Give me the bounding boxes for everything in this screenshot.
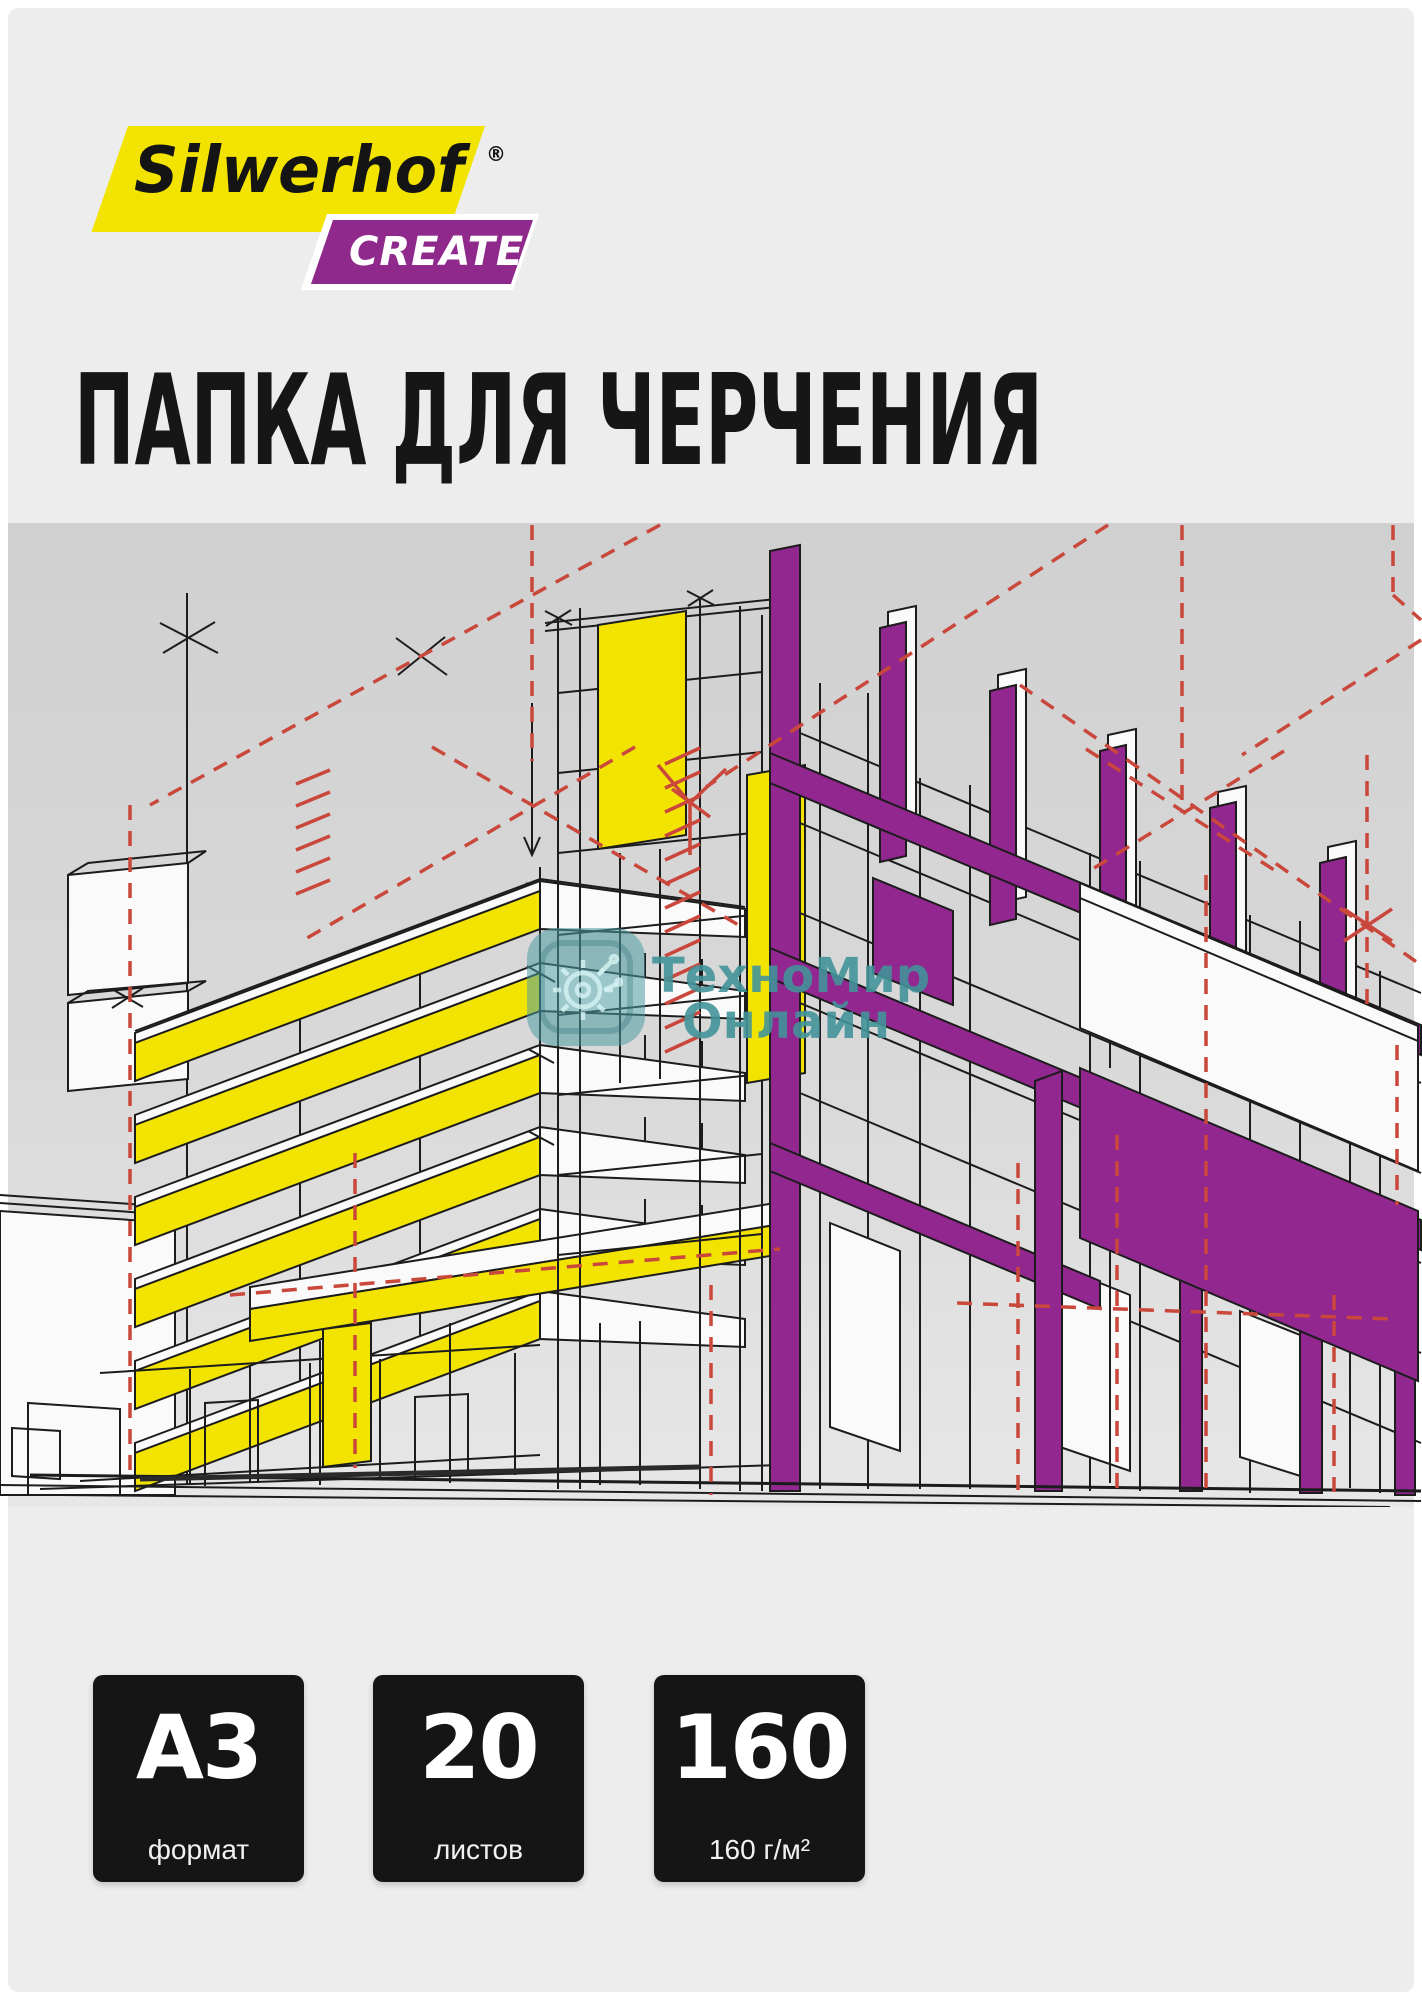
spec-value: 160 [671,1703,849,1793]
registered-trademark: ® [486,142,506,166]
brand-name-text: Silwerhof [134,134,471,208]
product-image: Silwerhof ® CREATE ПАПКА ДЛЯ ЧЕРЧЕНИЯ [0,0,1422,2000]
spec-label: листов [434,1834,523,1866]
spec-card-format: A3 формат [93,1675,304,1882]
product-title: ПАПКА ДЛЯ ЧЕРЧЕНИЯ [0,352,1422,492]
product-title-text: ПАПКА ДЛЯ ЧЕРЧЕНИЯ [74,352,1043,492]
hatch-marks-center [296,770,330,894]
spec-value: A3 [136,1703,261,1793]
spec-card-density: 160 160 г/м² [654,1675,865,1882]
architectural-illustration [0,523,1422,1507]
spec-label: 160 г/м² [709,1834,810,1866]
spec-label: формат [148,1834,249,1866]
brand-line-label: CREATE [349,229,533,275]
spec-value: 20 [419,1703,537,1793]
brand-wordmark: Silwerhof [130,134,500,212]
spec-card-sheets: 20 листов [373,1675,584,1882]
